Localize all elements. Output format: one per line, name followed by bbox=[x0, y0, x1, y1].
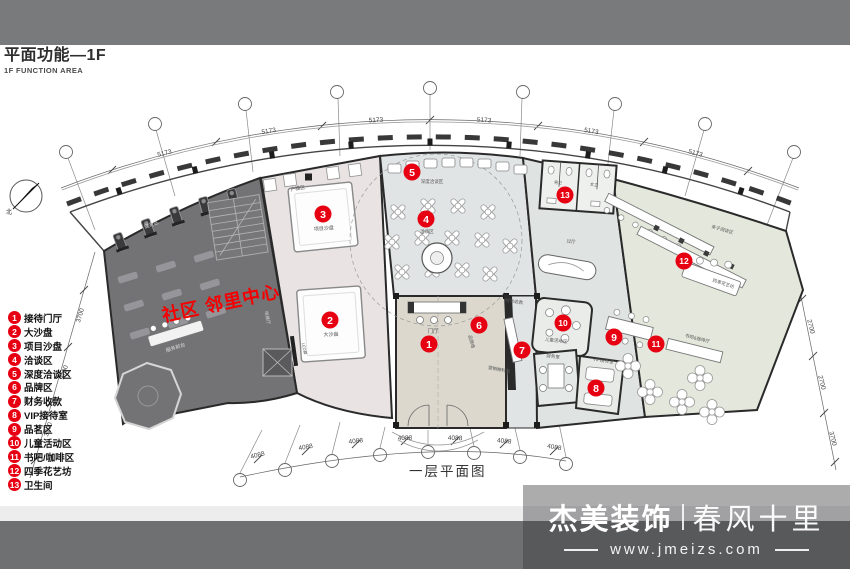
legend-number-badge: 12 bbox=[8, 464, 21, 477]
svg-text:2: 2 bbox=[327, 315, 333, 327]
legend-number-badge: 11 bbox=[8, 450, 21, 463]
text-label: 5173 bbox=[261, 127, 277, 136]
page: 北 51735173517351735173517340884088408840… bbox=[0, 0, 850, 569]
plan-marker-2: 2 bbox=[322, 312, 339, 329]
legend-item-label: 大沙盘 bbox=[24, 325, 53, 339]
text-label: 5173 bbox=[369, 117, 384, 125]
legend-item: 12四季花艺坊 bbox=[8, 464, 74, 478]
text-label: 2700 bbox=[816, 375, 826, 391]
text-label: 5173 bbox=[157, 148, 173, 159]
north-arrow-icon: 北 bbox=[6, 180, 42, 216]
brand-name: 杰美装饰 bbox=[548, 496, 672, 538]
legend-item: 1接待门厅 bbox=[8, 311, 74, 325]
legend-item: 4洽谈区 bbox=[8, 353, 74, 367]
plan-marker-6: 6 bbox=[471, 317, 488, 334]
plan-marker-5: 5 bbox=[404, 164, 421, 181]
legend-number-badge: 3 bbox=[8, 339, 21, 352]
elevator bbox=[263, 349, 292, 376]
svg-text:11: 11 bbox=[652, 339, 661, 349]
text-label: 深度洽谈区 bbox=[421, 178, 444, 185]
legend-item-label: 财务收款 bbox=[24, 394, 62, 408]
legend-number-badge: 7 bbox=[8, 395, 21, 408]
legend-item: 6品牌区 bbox=[8, 380, 74, 394]
legend-number-badge: 9 bbox=[8, 423, 21, 436]
text-label: 洽谈区 bbox=[420, 228, 434, 235]
svg-text:7: 7 bbox=[519, 345, 525, 357]
grid-bubbles-bottom bbox=[234, 446, 573, 487]
legend-item: 11书吧/咖啡区 bbox=[8, 450, 74, 464]
text-label: 4088 bbox=[398, 435, 413, 443]
plan-marker-7: 7 bbox=[514, 342, 531, 359]
plan-marker-10: 10 bbox=[555, 315, 572, 332]
legend-item: 3项目沙盘 bbox=[8, 339, 74, 353]
legend-item-label: 接待门厅 bbox=[24, 311, 62, 325]
legend-item: 2大沙盘 bbox=[8, 325, 74, 339]
legend-item-label: VIP接待室 bbox=[24, 408, 68, 422]
brand-slogan: 春风十里 bbox=[693, 496, 825, 538]
legend-number-badge: 4 bbox=[8, 353, 21, 366]
svg-text:12: 12 bbox=[679, 256, 689, 266]
round-reception-desk bbox=[422, 243, 452, 273]
text-label: 5173 bbox=[584, 127, 600, 136]
text-label: 门厅 bbox=[427, 327, 439, 335]
staircase bbox=[208, 195, 268, 260]
text-label: 4088 bbox=[497, 437, 512, 446]
dash-left bbox=[564, 549, 598, 551]
legend-number-badge: 6 bbox=[8, 381, 21, 394]
legend-number-badge: 1 bbox=[8, 311, 21, 324]
plan-marker-3: 3 bbox=[315, 206, 332, 223]
brand-website-line: www.jmeizs.com bbox=[564, 541, 809, 558]
svg-text:9: 9 bbox=[611, 332, 617, 344]
legend-item: 7财务收款 bbox=[8, 394, 74, 408]
text-label: 5173 bbox=[687, 148, 703, 159]
dash-right bbox=[775, 549, 809, 551]
legend-item-label: 卫生间 bbox=[24, 478, 53, 492]
legend-number-badge: 13 bbox=[8, 478, 21, 491]
text-label: 女卫 bbox=[590, 181, 599, 188]
plan-marker-12: 12 bbox=[676, 253, 693, 270]
legend-number-badge: 10 bbox=[8, 436, 21, 449]
legend-number-badge: 8 bbox=[8, 409, 21, 422]
svg-text:4: 4 bbox=[423, 214, 429, 226]
text-label: 男卫 bbox=[554, 180, 562, 186]
svg-text:8: 8 bbox=[593, 383, 599, 395]
text-label: 大沙盘 bbox=[323, 331, 338, 339]
legend-item: 5深度洽谈区 bbox=[8, 367, 74, 381]
text-label: 3700 bbox=[827, 431, 837, 447]
plan-marker-8: 8 bbox=[588, 380, 605, 397]
legend-number-badge: 2 bbox=[8, 325, 21, 338]
restrooms bbox=[539, 160, 616, 213]
text-label: 3700 bbox=[75, 307, 86, 323]
legend-item-label: 书吧/咖啡区 bbox=[24, 450, 74, 464]
plan-marker-13: 13 bbox=[557, 187, 574, 204]
legend-item-label: 项目沙盘 bbox=[24, 339, 62, 353]
legend-item-label: 洽谈区 bbox=[24, 353, 53, 367]
legend-list: 1接待门厅2大沙盘3项目沙盘4洽谈区5深度洽谈区6品牌区7财务收款8VIP接待室… bbox=[8, 311, 74, 492]
svg-text:6: 6 bbox=[476, 320, 482, 332]
floor-plan-drawing: 北 51735173517351735173517340884088408840… bbox=[0, 0, 850, 569]
logo-divider bbox=[682, 504, 684, 530]
plan-marker-4: 4 bbox=[418, 211, 435, 228]
text-label: 4088 bbox=[448, 435, 463, 443]
svg-text:北: 北 bbox=[6, 208, 12, 216]
legend-number-badge: 5 bbox=[8, 367, 21, 380]
svg-text:10: 10 bbox=[558, 318, 568, 328]
text-label: 4088 bbox=[348, 437, 363, 446]
plan-title: 一层平面图 bbox=[409, 460, 487, 480]
plan-marker-9: 9 bbox=[606, 329, 623, 346]
svg-text:3: 3 bbox=[320, 209, 326, 221]
plan-marker-1: 1 bbox=[421, 336, 438, 353]
legend-item: 9品茗区 bbox=[8, 422, 74, 436]
legend-item-label: 深度洽谈区 bbox=[24, 367, 72, 381]
legend-item: 8VIP接待室 bbox=[8, 408, 74, 422]
svg-text:1: 1 bbox=[426, 339, 432, 351]
plan-marker-11: 11 bbox=[648, 336, 665, 353]
text-label: 项目沙盘 bbox=[314, 224, 334, 232]
svg-text:5: 5 bbox=[409, 167, 415, 179]
legend-item: 13卫生间 bbox=[8, 478, 74, 492]
svg-text:13: 13 bbox=[560, 190, 570, 200]
legend-item-label: 品茗区 bbox=[24, 422, 53, 436]
text-label: 4088 bbox=[298, 443, 314, 452]
legend-item-label: 品牌区 bbox=[24, 380, 53, 394]
text-label: 5173 bbox=[477, 117, 492, 125]
brand-logo-block: 杰美装饰 春风十里 www.jmeizs.com bbox=[523, 485, 850, 569]
text-label: 4088 bbox=[547, 443, 563, 452]
brand-logo-line: 杰美装饰 春风十里 bbox=[548, 496, 824, 538]
brand-website: www.jmeizs.com bbox=[610, 541, 763, 558]
legend-item-label: 儿童活动区 bbox=[24, 436, 72, 450]
legend-item: 10儿童活动区 bbox=[8, 436, 74, 450]
legend-item-label: 四季花艺坊 bbox=[24, 464, 72, 478]
